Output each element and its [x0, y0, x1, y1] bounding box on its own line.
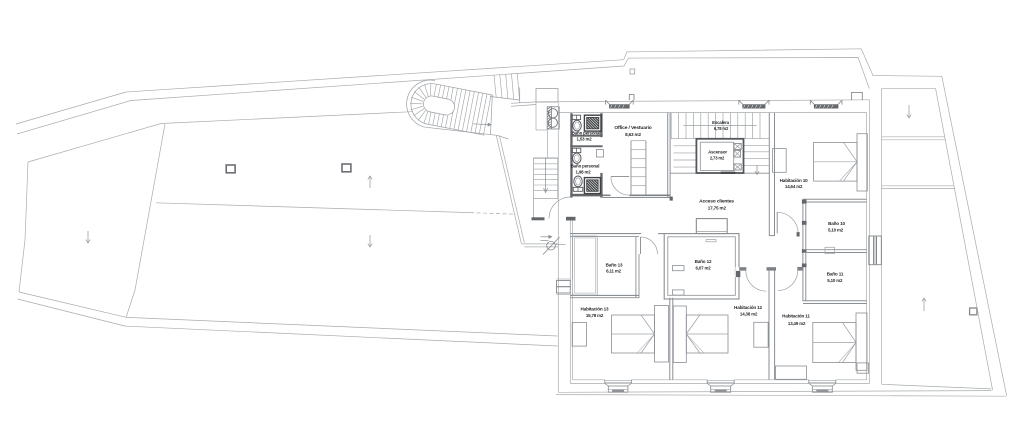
svg-text:Habitación 13: Habitación 13 [581, 307, 610, 312]
svg-text:Baño 12: Baño 12 [695, 259, 712, 264]
svg-text:Baño 10: Baño 10 [828, 221, 845, 226]
svg-text:Escalera: Escalera [712, 120, 730, 125]
svg-text:14,38 m2: 14,38 m2 [740, 311, 758, 316]
svg-text:Habitación 11: Habitación 11 [782, 313, 810, 318]
svg-text:Ascensor: Ascensor [708, 149, 727, 154]
svg-text:Habitación 12: Habitación 12 [734, 305, 763, 310]
svg-text:Baño personal: Baño personal [571, 163, 600, 168]
svg-text:Baño 13: Baño 13 [606, 262, 623, 267]
svg-text:6,11 m2: 6,11 m2 [606, 268, 622, 273]
svg-text:Acceso clientes: Acceso clientes [699, 198, 734, 204]
svg-text:8,63 m2: 8,63 m2 [625, 132, 641, 137]
svg-text:6,78 m2: 6,78 m2 [714, 126, 729, 131]
svg-text:1,53 m2: 1,53 m2 [576, 137, 592, 142]
svg-text:5,10 m2: 5,10 m2 [828, 227, 844, 232]
svg-text:5,10 m2: 5,10 m2 [827, 278, 843, 283]
svg-text:1,98 m2: 1,98 m2 [575, 170, 591, 175]
svg-text:Habitación 10: Habitación 10 [780, 178, 809, 183]
svg-text:Baño personal: Baño personal [572, 130, 601, 135]
svg-text:2,73 m2: 2,73 m2 [710, 156, 725, 161]
svg-text:Office / Vestuario: Office / Vestuario [614, 125, 651, 131]
svg-text:Baño 11: Baño 11 [827, 272, 844, 277]
svg-text:17,75 m2: 17,75 m2 [708, 205, 727, 210]
svg-text:6,07 m2: 6,07 m2 [695, 265, 711, 270]
svg-text:15,78 m2: 15,78 m2 [586, 313, 604, 318]
svg-text:14,64 m2: 14,64 m2 [785, 184, 803, 189]
svg-text:13,49 m2: 13,49 m2 [788, 321, 806, 326]
